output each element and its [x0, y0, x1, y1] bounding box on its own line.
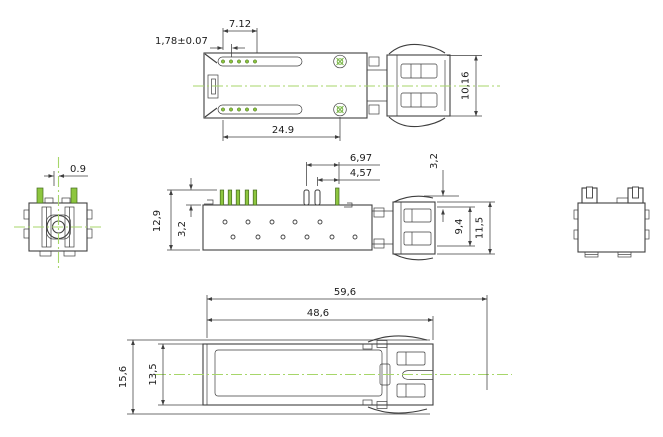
side-view-body-outline	[203, 200, 372, 250]
dim-label-15-6: 15,6	[118, 366, 129, 388]
dim-label-10-16: 10,16	[461, 71, 472, 100]
dim-label-7-12: 7.12	[229, 19, 251, 30]
dim-label-48-6: 48,6	[307, 308, 329, 319]
dim-label-4-57: 4,57	[350, 168, 372, 179]
dim-label-0-9: 0.9	[70, 164, 86, 175]
guide-post-pin	[315, 190, 320, 205]
dim-label-24-9: 24.9	[272, 125, 294, 136]
dim-label-1-78: 1,78±0.07	[155, 36, 208, 47]
dim-label-9-4: 9,4	[454, 219, 465, 235]
dim-label-12-9: 12,9	[152, 210, 163, 232]
dim-label-6-97: 6,97	[350, 153, 372, 164]
dim-label-59-6: 59,6	[334, 287, 356, 298]
engineering-drawing: 7.12 1,78±0.07 24.9 10,16	[0, 0, 663, 437]
dim-label-13-5: 13,5	[148, 363, 159, 385]
dim-label-3-2-left: 3,2	[177, 221, 188, 237]
guide-post-pin	[304, 190, 309, 205]
drawing-sheet: 7.12 1,78±0.07 24.9 10,16	[0, 0, 663, 437]
dim-label-3-2-right: 3,2	[429, 153, 440, 169]
dim-label-11-5: 11,5	[475, 217, 486, 239]
